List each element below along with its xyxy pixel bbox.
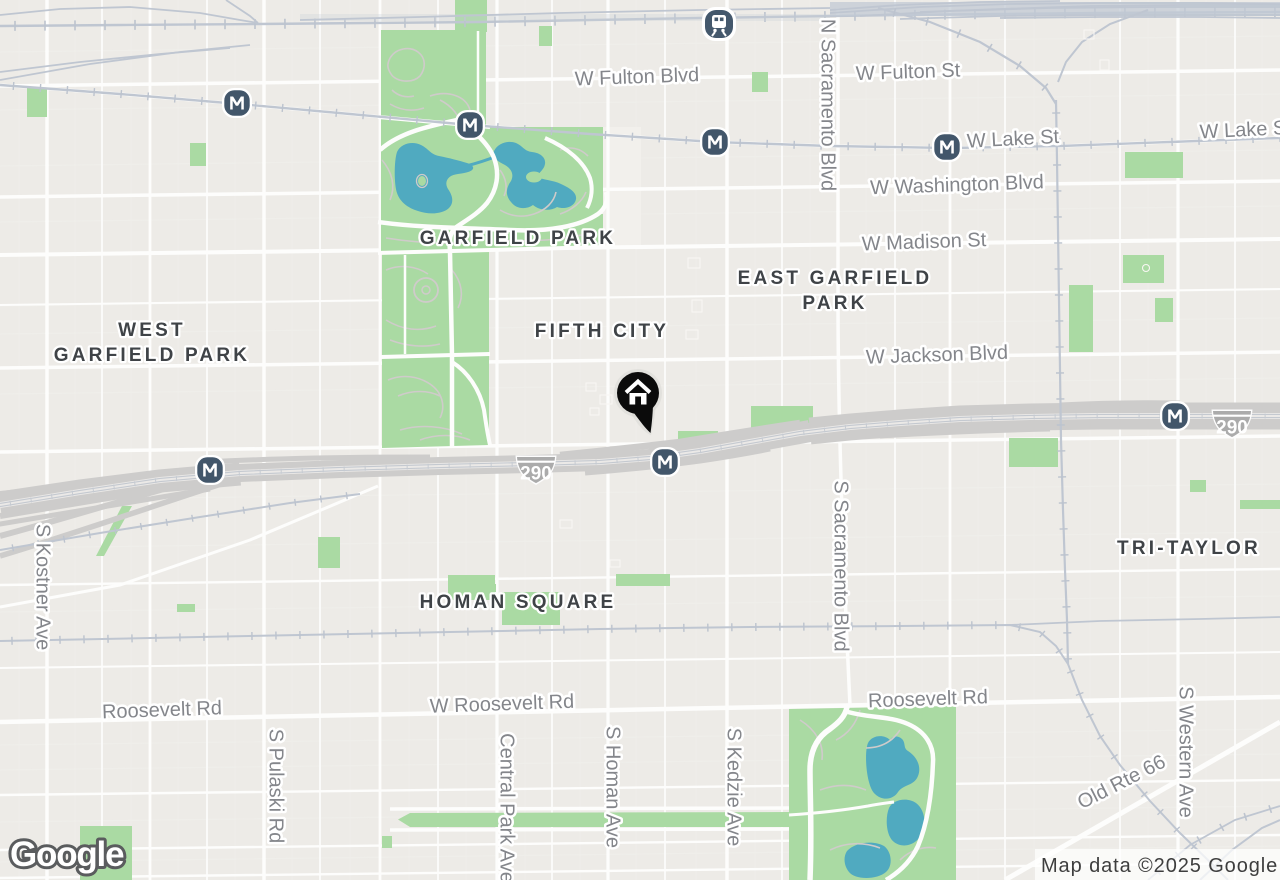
svg-text:W Fulton Blvd: W Fulton Blvd — [574, 64, 699, 90]
svg-text:S Sacramento Blvd: S Sacramento Blvd — [830, 480, 852, 651]
svg-text:GARFIELD PARK: GARFIELD PARK — [54, 345, 250, 366]
svg-text:WEST: WEST — [118, 320, 186, 341]
svg-text:Roosevelt Rd: Roosevelt Rd — [868, 686, 989, 712]
svg-text:GARFIELD PARK: GARFIELD PARK — [420, 228, 616, 249]
svg-text:S Kedzie Ave: S Kedzie Ave — [723, 728, 745, 847]
svg-text:N Sacramento Blvd: N Sacramento Blvd — [817, 19, 839, 191]
svg-text:FIFTH CITY: FIFTH CITY — [535, 321, 669, 342]
svg-text:290: 290 — [520, 464, 552, 485]
svg-text:PARK: PARK — [802, 293, 867, 314]
svg-text:S Pulaski Rd: S Pulaski Rd — [265, 729, 287, 844]
svg-text:EAST GARFIELD: EAST GARFIELD — [738, 268, 933, 289]
svg-text:Google: Google — [10, 835, 124, 874]
svg-text:HOMAN SQUARE: HOMAN SQUARE — [420, 592, 617, 613]
svg-text:S Western Ave: S Western Ave — [1175, 686, 1197, 818]
svg-text:W Madison St: W Madison St — [861, 229, 987, 255]
svg-text:TRI-TAYLOR: TRI-TAYLOR — [1117, 538, 1261, 559]
svg-text:S Homan Ave: S Homan Ave — [602, 726, 624, 848]
svg-text:Central Park Ave: Central Park Ave — [496, 733, 518, 880]
svg-text:Roosevelt Rd: Roosevelt Rd — [102, 697, 223, 723]
svg-text:Map data ©2025 Google: Map data ©2025 Google — [1041, 855, 1278, 877]
svg-text:S Kostner Ave: S Kostner Ave — [32, 524, 54, 650]
svg-text:290: 290 — [1216, 418, 1248, 439]
svg-text:W Fulton St: W Fulton St — [855, 59, 961, 85]
svg-text:W Lake S: W Lake S — [1199, 117, 1280, 144]
